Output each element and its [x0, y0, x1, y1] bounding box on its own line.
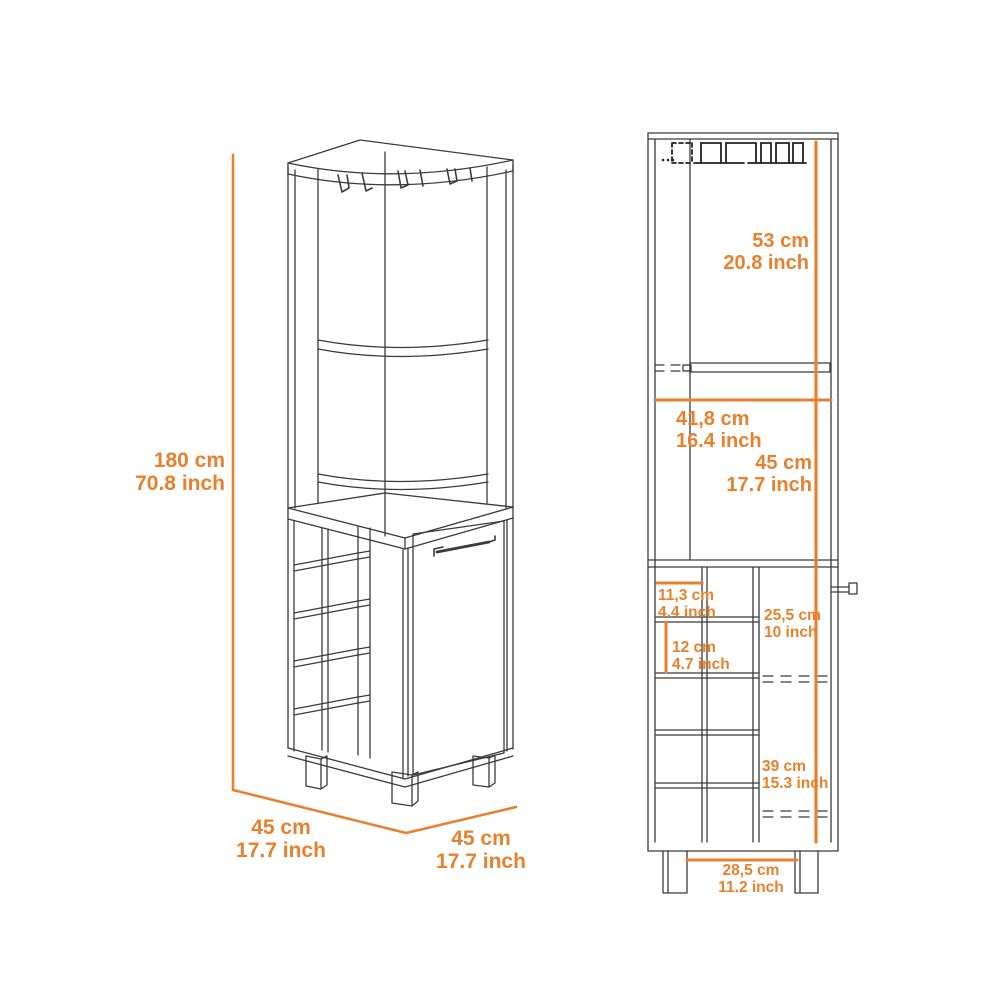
leg-spacing-label: 28,5 cm 11.2 inch [681, 862, 821, 896]
stemware-rack-slats [662, 143, 806, 163]
bottle-cubby-width-label: 11,3 cm 4.4 inch [658, 587, 716, 621]
depth-inch-text: 17.7 inch [201, 839, 361, 862]
lower-cavity-height-label: 45 cm 17.7 inch [672, 452, 812, 496]
upper-cavity-height-label: 53 cm 20.8 inch [669, 230, 809, 274]
mid-shelf-front [655, 363, 830, 372]
door-upper-cm-text: 25,5 cm [764, 607, 821, 624]
interior-width-cm-text: 41,8 cm [676, 408, 762, 430]
bottle-cubby-height-label: 12 cm 4.7 inch [672, 639, 730, 673]
upper-cavity-cm-text: 53 cm [669, 230, 809, 252]
width-inch-text: 17.7 inch [401, 850, 561, 873]
dimension-diagram-page: 180 cm 70.8 inch 45 cm 17.7 inch 45 cm 1… [0, 0, 1000, 1000]
interior-width-label: 41,8 cm 16.4 inch [676, 408, 762, 452]
height-cm-text: 180 cm [77, 449, 225, 472]
cubby-height-cm-text: 12 cm [672, 639, 730, 656]
interior-width-inch-text: 16.4 inch [676, 430, 762, 452]
height-inch-text: 70.8 inch [77, 472, 225, 495]
door-upper-section-label: 25,5 cm 10 inch [764, 607, 821, 641]
depth-dimension-label: 45 cm 17.7 inch [201, 816, 361, 862]
cubby-width-cm-text: 11,3 cm [658, 587, 716, 604]
door-upper-inch-text: 10 inch [764, 624, 821, 641]
side-door-handle [831, 583, 857, 594]
door-lower-cm-text: 39 cm [762, 758, 828, 775]
height-dimension-label: 180 cm 70.8 inch [77, 449, 225, 495]
door-lower-section-label: 39 cm 15.3 inch [762, 758, 828, 792]
width-cm-text: 45 cm [401, 827, 561, 850]
upper-cavity-inch-text: 20.8 inch [669, 252, 809, 274]
leg-spacing-inch-text: 11.2 inch [681, 879, 821, 896]
cubby-height-inch-text: 4.7 inch [672, 656, 730, 673]
door-lower-inch-text: 15.3 inch [762, 775, 828, 792]
hidden-shelf-dashed-lines [763, 676, 829, 817]
depth-cm-text: 45 cm [201, 816, 361, 839]
lower-cavity-inch-text: 17.7 inch [672, 474, 812, 496]
cubby-width-inch-text: 4.4 inch [658, 604, 716, 621]
width-dimension-label: 45 cm 17.7 inch [401, 827, 561, 873]
lower-cavity-cm-text: 45 cm [672, 452, 812, 474]
leg-spacing-cm-text: 28,5 cm [681, 862, 821, 879]
